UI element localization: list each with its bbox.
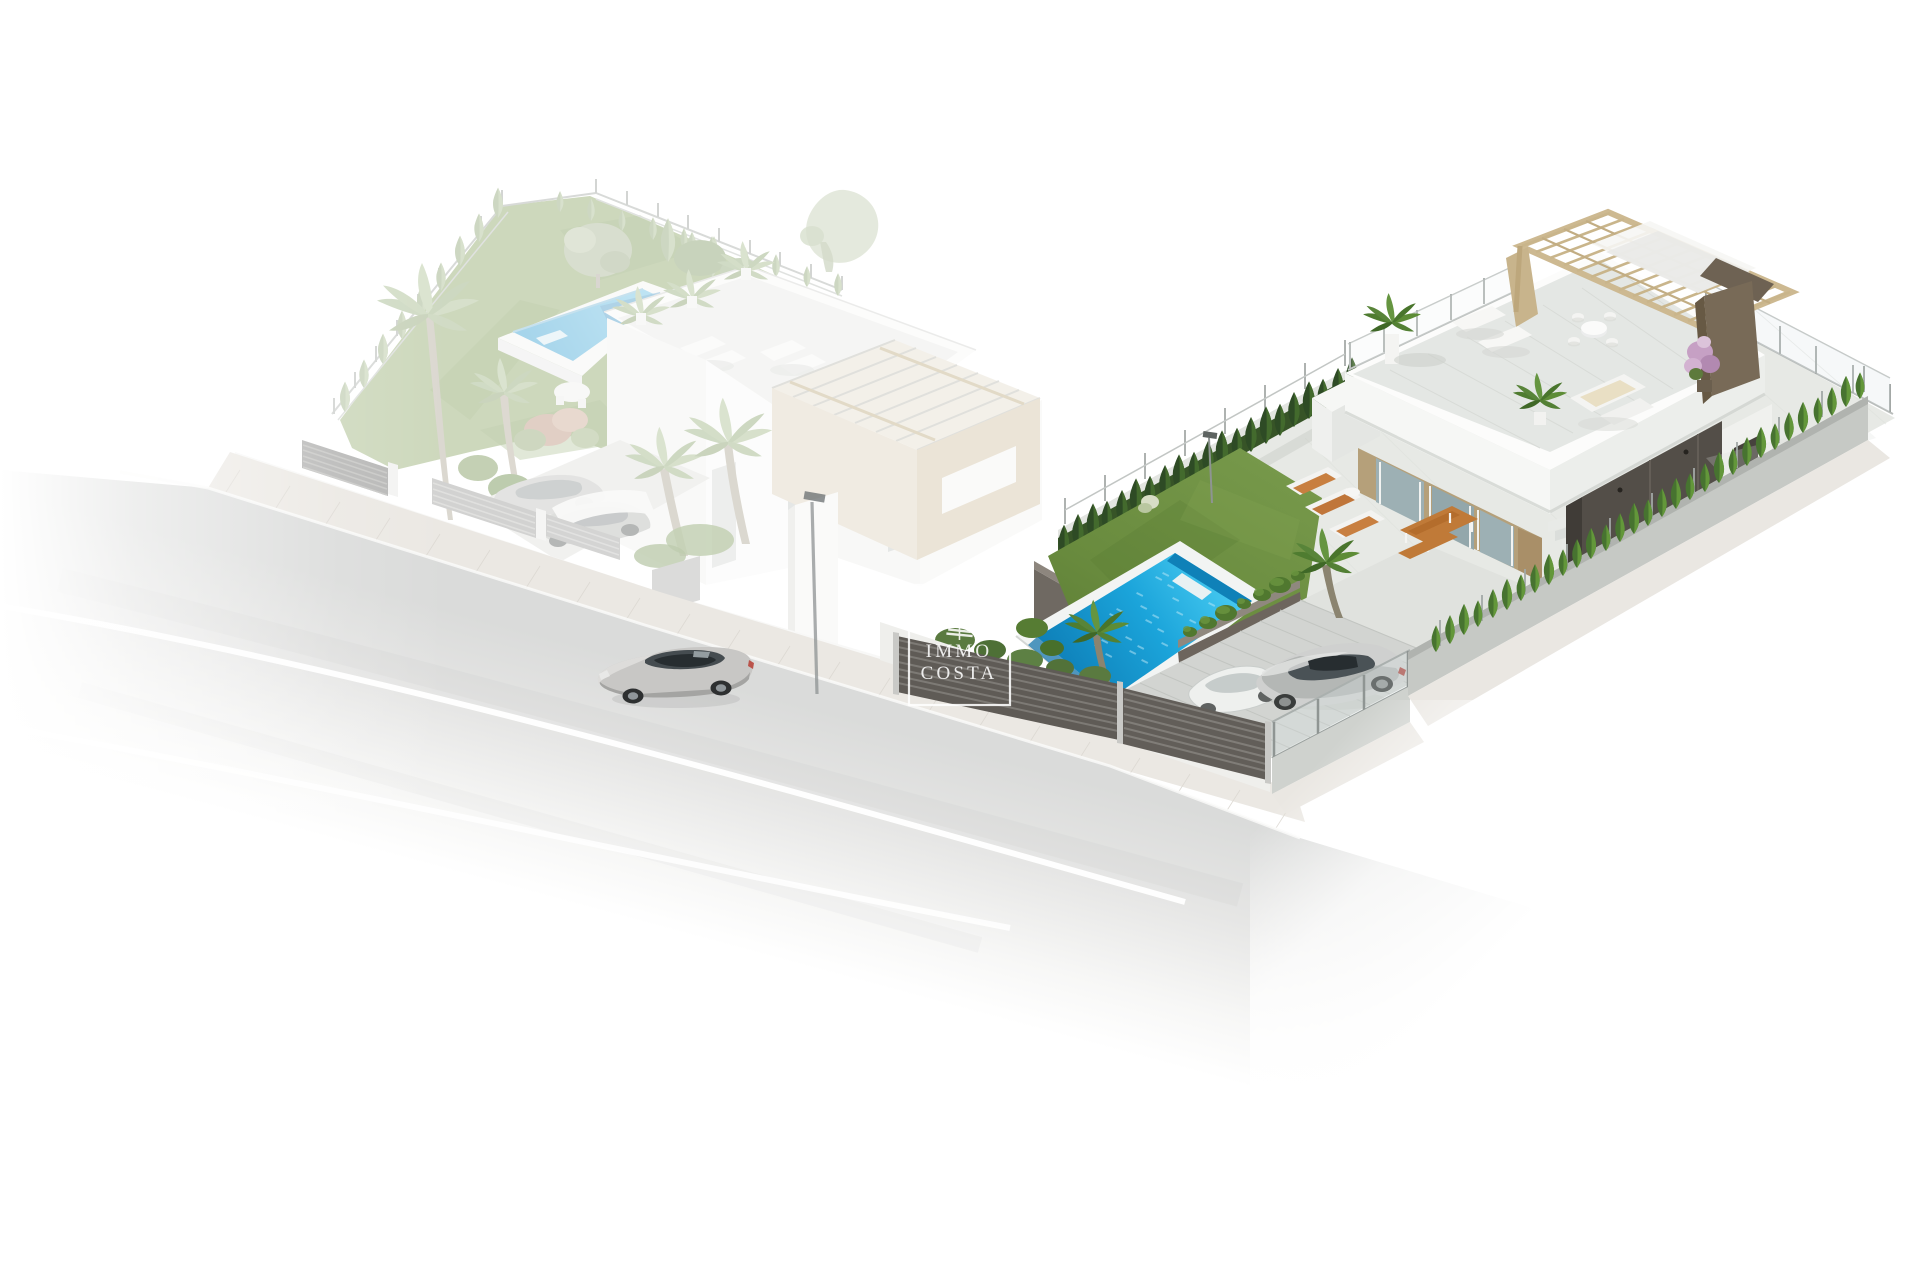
svg-text:COSTA: COSTA — [921, 663, 998, 684]
svg-text:IMMO: IMMO — [926, 641, 993, 662]
